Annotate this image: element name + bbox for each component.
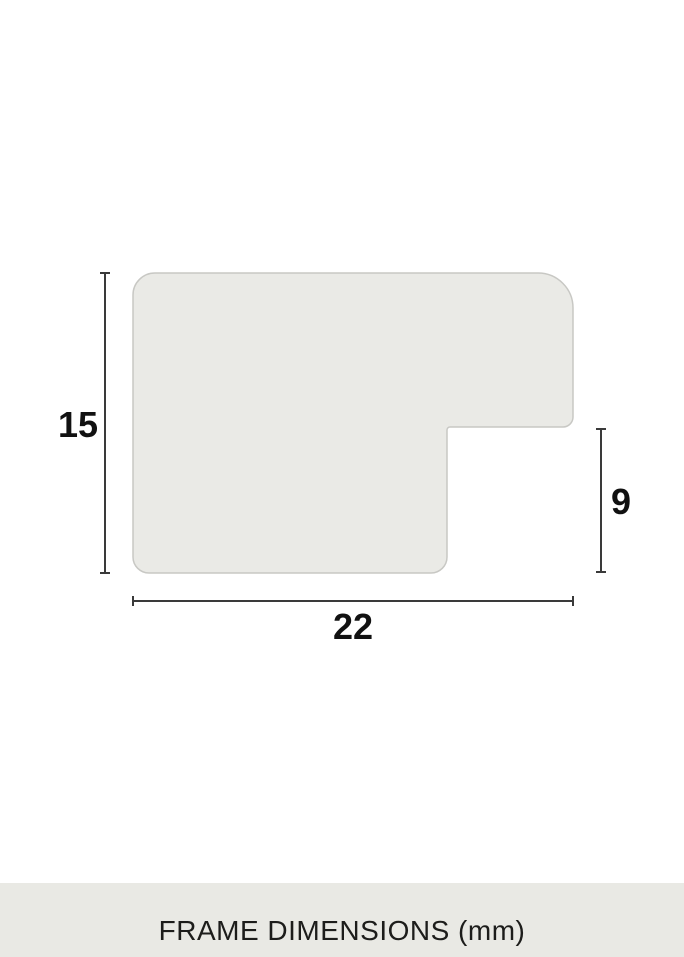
frame-profile-shape [133, 273, 573, 573]
height-dimension-label: 15 [58, 404, 98, 445]
width-dimension-label: 22 [333, 606, 373, 647]
width-dimension-line [133, 596, 573, 606]
page: 15 9 22 FRAME DIMENSIONS (mm) [0, 0, 684, 957]
height-dimension-line [100, 273, 110, 573]
rebate-dimension-line [596, 429, 606, 572]
frame-profile-diagram: 15 9 22 [0, 0, 684, 883]
footer-bar: FRAME DIMENSIONS (mm) [0, 883, 684, 957]
footer-title: FRAME DIMENSIONS (mm) [159, 915, 526, 947]
rebate-dimension-label: 9 [611, 481, 631, 522]
